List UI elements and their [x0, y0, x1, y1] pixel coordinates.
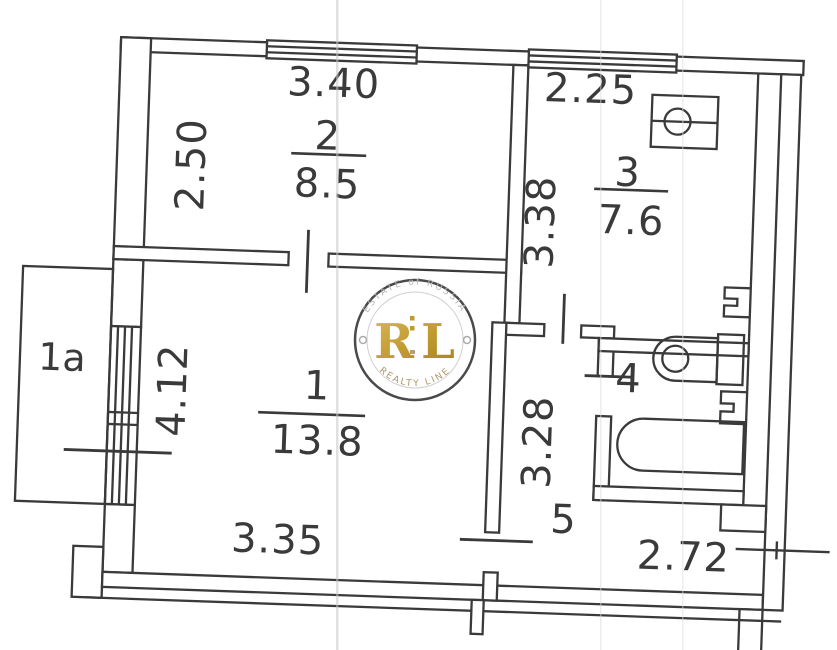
- wall-left-mid: [111, 259, 143, 327]
- wall-room1-hall-b: [483, 572, 498, 600]
- wall-room1-hall-a: [485, 322, 506, 532]
- door-opening-mark: [306, 230, 308, 293]
- wall-left-lower: [102, 504, 134, 573]
- hall-height-dim: 3.28: [514, 395, 563, 490]
- room3-number: 3: [614, 149, 642, 196]
- room2-height-dim: 2.50: [167, 117, 216, 212]
- watermark-reg-mark: [410, 350, 415, 354]
- wall-room3-inner-face: [743, 73, 758, 505]
- room2-width-dim: 3.40: [286, 59, 381, 108]
- wall-section-stub: [471, 600, 484, 634]
- wall-hall-room3-b: [581, 325, 614, 338]
- door-opening-mark: [460, 539, 533, 542]
- wall-bath-jog: [720, 504, 766, 532]
- wall-hall-room3-a: [504, 323, 544, 336]
- wall-right: [763, 74, 802, 610]
- room3-area: 7.6: [597, 197, 665, 245]
- room1-width-dim: 3.35: [230, 515, 325, 564]
- room1-fraction-bar: [258, 412, 365, 416]
- wall-room2-room1-b: [328, 254, 521, 274]
- room2-area: 8.5: [293, 160, 361, 208]
- watermark-monogram: RL: [374, 314, 462, 370]
- bathroom-number: 4: [615, 356, 643, 403]
- scan-line: [336, 0, 339, 650]
- floor-plan-svg: 3.40 2 8.5 2.50 2.25 3 7.6 3.38 1a 4.12 …: [0, 0, 837, 650]
- room3-width-dim: 2.25: [543, 65, 638, 114]
- radiator-icon: [724, 287, 751, 317]
- scan-line: [682, 0, 684, 650]
- watermark-colon-dot: [410, 316, 415, 321]
- watermark-colon-dot: [410, 326, 415, 331]
- room3-height-dim: 3.38: [516, 175, 565, 270]
- wall-bottom-notch: [72, 546, 104, 598]
- scanned-floor-plan: 3.40 2 8.5 2.50 2.25 3 7.6 3.38 1a 4.12 …: [0, 0, 837, 650]
- wall-top: [121, 37, 804, 75]
- watermark-side-dot-left: [360, 337, 367, 344]
- kitchen-sink-icon: [651, 95, 719, 149]
- scan-line: [600, 0, 602, 650]
- hall-number: 5: [550, 496, 578, 543]
- room1-number: 1: [303, 363, 331, 410]
- bathtub-icon: [616, 418, 744, 474]
- watermark-stamp: ESTATE of RUSSIA REALTY LINE RL: [355, 277, 475, 400]
- wall-right-stub: [738, 609, 763, 650]
- door-opening-mark: [64, 449, 172, 453]
- room1-height-dim: 4.12: [148, 343, 197, 438]
- door-opening-mark: [563, 294, 565, 344]
- wall-bath-top: [598, 338, 748, 356]
- wall-left-upper: [113, 37, 151, 260]
- balcony-outline: [15, 266, 113, 504]
- wall-bath-bottom: [593, 486, 743, 505]
- balcony-label: 1a: [37, 334, 86, 380]
- radiator-icon: [720, 391, 747, 424]
- watermark-side-dot-right: [464, 337, 471, 344]
- room1-area: 13.8: [270, 417, 365, 466]
